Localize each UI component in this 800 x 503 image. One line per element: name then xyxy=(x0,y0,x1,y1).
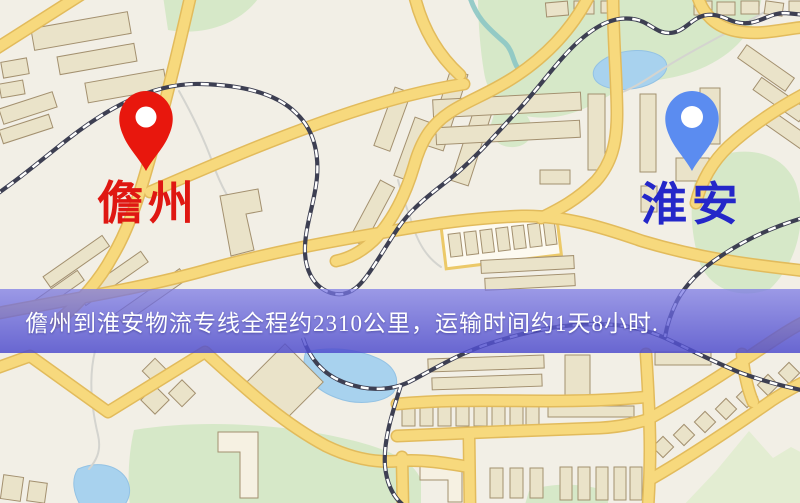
destination-label: 淮安 xyxy=(641,179,743,230)
origin-label: 儋州 xyxy=(97,178,199,229)
route-info-text: 儋州到淮安物流专线全程约2310公里，运输时间约1天8小时. xyxy=(25,304,659,338)
map-view: 儋州 淮安 儋州到淮安物流专线全程约2310公里，运输时间约1天8小时. xyxy=(0,0,800,503)
route-info-banner: 儋州到淮安物流专线全程约2310公里，运输时间约1天8小时. xyxy=(0,289,800,353)
origin-pin-hole xyxy=(136,107,157,128)
map-canvas[interactable]: 儋州 淮安 xyxy=(0,0,800,503)
destination-pin-hole xyxy=(681,106,703,128)
